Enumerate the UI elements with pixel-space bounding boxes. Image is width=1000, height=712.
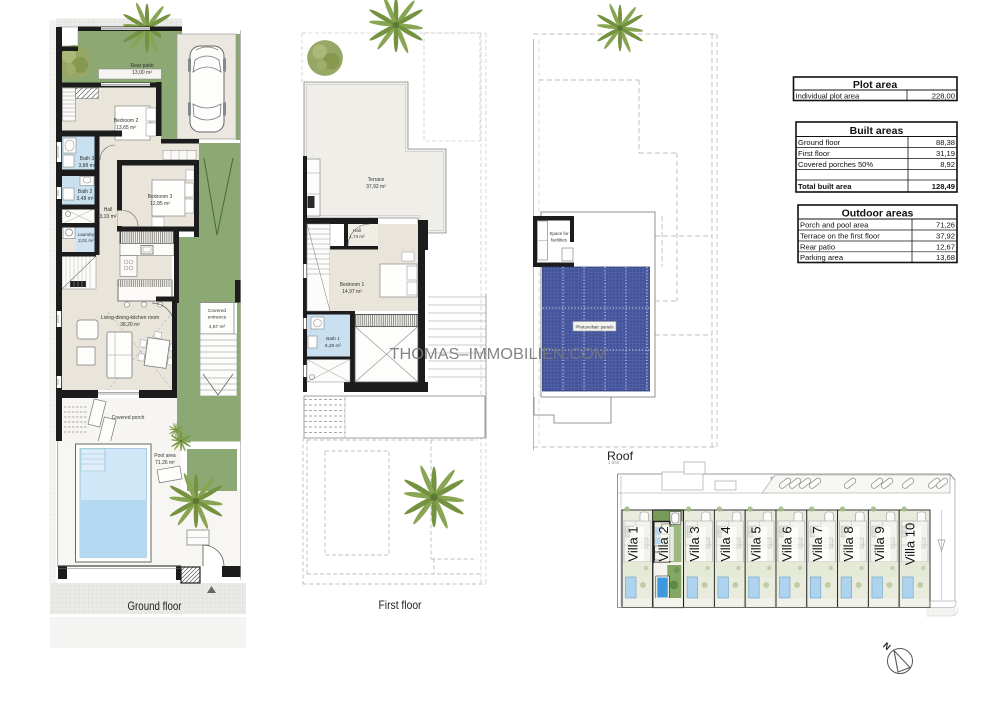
svg-text:12,67: 12,67 [936,242,955,251]
svg-text:Built areas: Built areas [850,125,904,137]
svg-text:Photovoltaic panels: Photovoltaic panels [575,325,614,330]
svg-text:13,00 m²: 13,00 m² [132,70,152,76]
svg-text:Covered porch: Covered porch [112,415,145,421]
svg-text:128,49: 128,49 [932,182,955,191]
svg-text:3,10 m²: 3,10 m² [100,214,117,220]
svg-text:38,20 m²: 38,20 m² [120,322,140,328]
svg-text:37,92 m²: 37,92 m² [366,184,386,190]
svg-text:Bedroom 3: Bedroom 3 [148,194,173,200]
svg-text:Total built area: Total built area [798,182,852,191]
svg-text:First floor: First floor [379,598,422,612]
svg-text:3,48 m²: 3,48 m² [77,196,94,202]
svg-text:88,38: 88,38 [936,138,955,147]
svg-text:Ground floor: Ground floor [128,599,182,613]
svg-text:Rear patio: Rear patio [800,242,835,251]
svg-text:Covered: Covered [208,308,226,314]
svg-text:12,85 m²: 12,85 m² [150,201,170,207]
svg-text:Villa 2: Villa 2 [656,526,671,561]
svg-text:71,26 m²: 71,26 m² [155,460,175,466]
svg-text:1,74 m²: 1,74 m² [349,234,365,239]
svg-text:Bedroom 2: Bedroom 2 [114,118,139,124]
svg-text:Villa 10: Villa 10 [903,523,918,565]
svg-text:Villa 4: Villa 4 [718,526,733,561]
svg-text:228,00: 228,00 [932,91,955,100]
svg-text:Terrace on the first floor: Terrace on the first floor [800,232,880,241]
svg-text:31,19: 31,19 [936,149,955,158]
svg-text:14,97 m²: 14,97 m² [342,289,362,295]
svg-text:Villa 7: Villa 7 [810,526,825,561]
svg-text:Outdoor areas: Outdoor areas [842,208,914,220]
svg-text:4,67 m²: 4,67 m² [209,324,226,330]
svg-text:Villa 5: Villa 5 [749,526,764,561]
svg-text:Terrace: Terrace [368,177,385,183]
svg-text:Bedroom 1: Bedroom 1 [340,282,365,288]
svg-text:facilities: facilities [551,238,568,243]
svg-text:6,29 m²: 6,29 m² [325,343,342,349]
svg-text:2,01 m²: 2,01 m² [78,238,94,243]
svg-text:entrance: entrance [208,315,227,321]
svg-text:71,26: 71,26 [936,221,955,230]
svg-text:First floor: First floor [798,149,830,158]
svg-text:Villa 3: Villa 3 [687,526,702,561]
svg-text:Covered porches 50%: Covered porches 50% [798,160,873,169]
svg-text:Living-dining-kitchen room: Living-dining-kitchen room [101,315,159,321]
svg-text:Hall: Hall [104,207,113,213]
svg-text:Bath 3: Bath 3 [80,156,95,162]
svg-text:13,68: 13,68 [936,253,955,262]
svg-text:Individual plot area: Individual plot area [796,91,861,100]
svg-text:1:500: 1:500 [608,460,620,465]
svg-text:3,88 m²: 3,88 m² [79,163,96,169]
svg-text:THOMAS–IMMOBILIEN.COM: THOMAS–IMMOBILIEN.COM [390,346,608,363]
svg-text:Plot area: Plot area [853,79,898,91]
svg-text:Bath 2: Bath 2 [78,189,93,195]
svg-text:Villa 1: Villa 1 [625,526,640,561]
svg-text:Pool area: Pool area [154,453,176,459]
svg-text:Villa 8: Villa 8 [841,526,856,561]
svg-text:Laundry: Laundry [78,232,95,237]
svg-text:Ground floor: Ground floor [798,138,841,147]
svg-text:8,92: 8,92 [940,160,955,169]
svg-text:Villa 9: Villa 9 [872,526,887,561]
svg-text:Porch and pool area: Porch and pool area [800,221,869,230]
svg-text:37,92: 37,92 [936,232,955,241]
svg-text:Space for: Space for [549,231,569,236]
svg-text:Bath 1: Bath 1 [326,336,340,342]
svg-text:Rear patio: Rear patio [130,63,153,69]
svg-text:Villa 6: Villa 6 [779,526,794,561]
svg-text:13,65 m²: 13,65 m² [116,125,136,131]
svg-text:Parking area: Parking area [800,253,844,262]
